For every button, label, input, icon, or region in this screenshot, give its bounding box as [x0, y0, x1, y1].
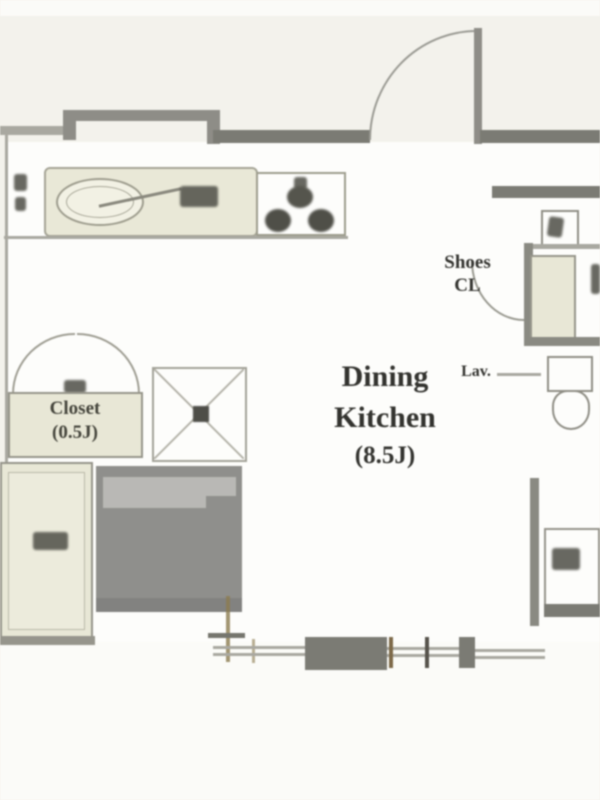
room-label-line2: Kitchen	[290, 397, 480, 438]
floorplan-canvas: Dining Kitchen (8.5J) Shoes CL Closet (0…	[0, 0, 600, 800]
wall-under-counter	[4, 236, 348, 239]
wall-right-lower	[530, 478, 539, 626]
gray-block-bottom-band	[96, 598, 242, 612]
lavatory-label: Lav.	[452, 363, 500, 381]
left-door-mark-2	[15, 197, 26, 211]
wall-porch-bottom	[492, 186, 600, 198]
wall-bottom-1	[305, 637, 387, 670]
shoes-closet-label: Shoes CL	[420, 252, 515, 298]
pipe-shaft-glyph	[547, 216, 565, 238]
utility-label-smudge	[552, 548, 580, 570]
bottom-margin	[0, 642, 600, 800]
wall-bottom-2	[459, 637, 475, 668]
counter-label-smudge	[180, 186, 218, 207]
wall-top-mid	[70, 110, 220, 121]
room-label-size: (8.5J)	[290, 439, 480, 474]
gray-block-light-strip	[103, 477, 206, 508]
window-mullion-dark	[425, 637, 429, 668]
toilet-bowl-icon	[552, 390, 590, 430]
window-corner-mark	[208, 633, 245, 638]
bathroom-label-smudge	[33, 532, 68, 550]
wall-top-main	[213, 130, 370, 143]
window-line-1a	[213, 646, 307, 649]
stove-burner-left-icon	[265, 209, 291, 232]
gray-block-light-notch	[206, 477, 236, 496]
entrance-door-leaf-icon	[474, 28, 482, 144]
window-line-3a	[475, 649, 545, 652]
floorplan-screenshot: Dining Kitchen (8.5J) Shoes CL Closet (0…	[0, 0, 600, 800]
closet-label-size: (0.5J)	[10, 421, 140, 445]
left-door-mark-1	[14, 174, 27, 191]
closet-label: Closet (0.5J)	[10, 397, 140, 445]
edge-cutoff-mark	[591, 264, 600, 294]
wall-below-shoes	[524, 337, 600, 346]
shoes-label-line1: Shoes	[420, 252, 515, 275]
wall-top-left	[0, 126, 70, 135]
toilet-cistern-icon	[547, 356, 593, 392]
stove-grill-icon	[287, 186, 313, 208]
window-tick-olive-2	[252, 639, 255, 663]
entrance-door-arc-icon	[369, 30, 477, 140]
wall-under-ps	[533, 244, 600, 249]
shoes-cabinet	[530, 255, 576, 339]
closet-label-line1: Closet	[10, 397, 140, 421]
top-margin	[0, 0, 600, 16]
stove-burner-right-icon	[308, 209, 334, 232]
kitchen-sink-inner	[66, 186, 134, 218]
wall-top-right	[480, 130, 600, 143]
window-mullion-brown	[389, 637, 393, 668]
shoes-label-line2: CL	[420, 275, 515, 298]
lavatory-leader-line	[497, 373, 541, 376]
window-line-3b	[475, 656, 545, 659]
window-line-2a	[387, 647, 461, 650]
wall-utility-bottom	[544, 604, 600, 617]
bathroom-inner	[8, 472, 85, 630]
window-line-2b	[387, 654, 461, 657]
washer-drain-mark	[193, 406, 209, 422]
wall-bath-bottom	[0, 636, 95, 645]
window-line-1b	[213, 653, 307, 656]
